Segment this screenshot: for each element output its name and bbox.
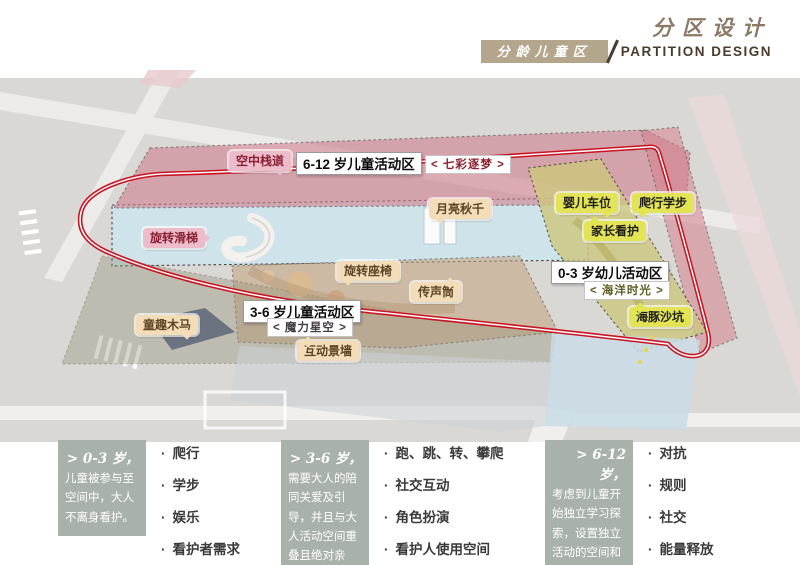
note-0-3-box: > 0-3 岁， 儿童被参与至空间中，大人不离身看护。 bbox=[58, 440, 146, 536]
bubble-dolphin-sandpit: 海豚沙坑 bbox=[629, 307, 691, 327]
zone-6-12-title: 6-12 岁儿童活动区 bbox=[296, 152, 422, 175]
bubble-rocking-horse: 童趣木马 bbox=[136, 315, 198, 335]
page-title: 分区设计 bbox=[652, 12, 772, 42]
site-plan-illustration bbox=[0, 70, 800, 442]
list-item: 爬行 bbox=[161, 442, 240, 462]
list-item: 看护人使用空间 bbox=[384, 538, 504, 558]
note-0-3-desc: 儿童被参与至空间中，大人不离身看护。 bbox=[65, 473, 134, 524]
zone-3-6-subtitle: < 魔力星空 > bbox=[267, 318, 353, 337]
bubble-spiral-slide: 旋转滑梯 bbox=[143, 228, 205, 248]
bubble-stroller-parking: 婴儿车位 bbox=[556, 193, 618, 213]
bubble-crawl-toddle: 爬行学步 bbox=[632, 193, 694, 213]
presentation-slide: 分区设计 分龄儿童区 PARTITION DESIGN bbox=[0, 0, 800, 565]
list-item: 学步 bbox=[161, 474, 240, 494]
list-item: 看护者需求 bbox=[161, 538, 240, 558]
note-3-6: > 3-6 岁， 需要大人的陪同关爱及引导，并且与大人活动空间重叠且绝对亲密。 … bbox=[281, 440, 504, 565]
list-item: 社交 bbox=[648, 506, 714, 526]
zone-0-3-subtitle: < 海洋时光 > bbox=[584, 281, 670, 300]
note-0-3: > 0-3 岁， 儿童被参与至空间中，大人不离身看护。 爬行 学步 娱乐 看护者… bbox=[58, 440, 240, 565]
list-item: 娱乐 bbox=[161, 506, 240, 526]
header-subtitle-row: 分龄儿童区 PARTITION DESIGN bbox=[481, 39, 772, 64]
note-0-3-age: > 0-3 岁， bbox=[65, 447, 139, 467]
note-3-6-desc: 需要大人的陪同关爱及引导，并且与大人活动空间重叠且绝对亲密。 bbox=[288, 473, 357, 565]
list-item: 角色扮演 bbox=[384, 506, 504, 526]
page-subtitle-en: PARTITION DESIGN bbox=[621, 44, 772, 59]
section-tag: 分龄儿童区 bbox=[481, 40, 608, 63]
list-item: 规则 bbox=[648, 474, 714, 494]
note-6-12-desc: 考虑到儿童开始独立学习探索，设置独立活动的空间和器械。 bbox=[552, 489, 621, 565]
bubble-rotating-seat: 旋转座椅 bbox=[337, 261, 399, 281]
note-0-3-list: 爬行 学步 娱乐 看护者需求 bbox=[161, 442, 240, 565]
note-6-12-list: 对抗 规则 社交 能量释放 bbox=[648, 442, 714, 565]
note-6-12: > 6-12 岁， 考虑到儿童开始独立学习探索，设置独立活动的空间和器械。 对抗… bbox=[545, 440, 714, 565]
bubble-parent-care: 家长看护 bbox=[584, 221, 646, 241]
bubble-sky-walkway: 空中栈道 bbox=[229, 151, 291, 171]
bubble-moon-swing: 月亮秋千 bbox=[429, 199, 491, 219]
list-item: 社交互动 bbox=[384, 474, 504, 494]
note-3-6-list: 跑、跳、转、攀爬 社交互动 角色扮演 看护人使用空间 bbox=[384, 442, 504, 565]
bubble-voice-tube: 传声筒 bbox=[411, 282, 461, 302]
note-6-12-age: > 6-12 岁， bbox=[552, 447, 626, 483]
note-6-12-box: > 6-12 岁， 考虑到儿童开始独立学习探索，设置独立活动的空间和器械。 bbox=[545, 440, 633, 565]
site-plan bbox=[0, 70, 800, 442]
note-3-6-box: > 3-6 岁， 需要大人的陪同关爱及引导，并且与大人活动空间重叠且绝对亲密。 bbox=[281, 440, 369, 565]
bubble-interactive-wall: 互动景墙 bbox=[297, 341, 359, 361]
list-item: 跑、跳、转、攀爬 bbox=[384, 442, 504, 462]
list-item: 对抗 bbox=[648, 442, 714, 462]
zone-6-12-subtitle: < 七彩逐梦 > bbox=[425, 155, 511, 174]
list-item: 能量释放 bbox=[648, 538, 714, 558]
note-3-6-age: > 3-6 岁， bbox=[288, 447, 362, 467]
